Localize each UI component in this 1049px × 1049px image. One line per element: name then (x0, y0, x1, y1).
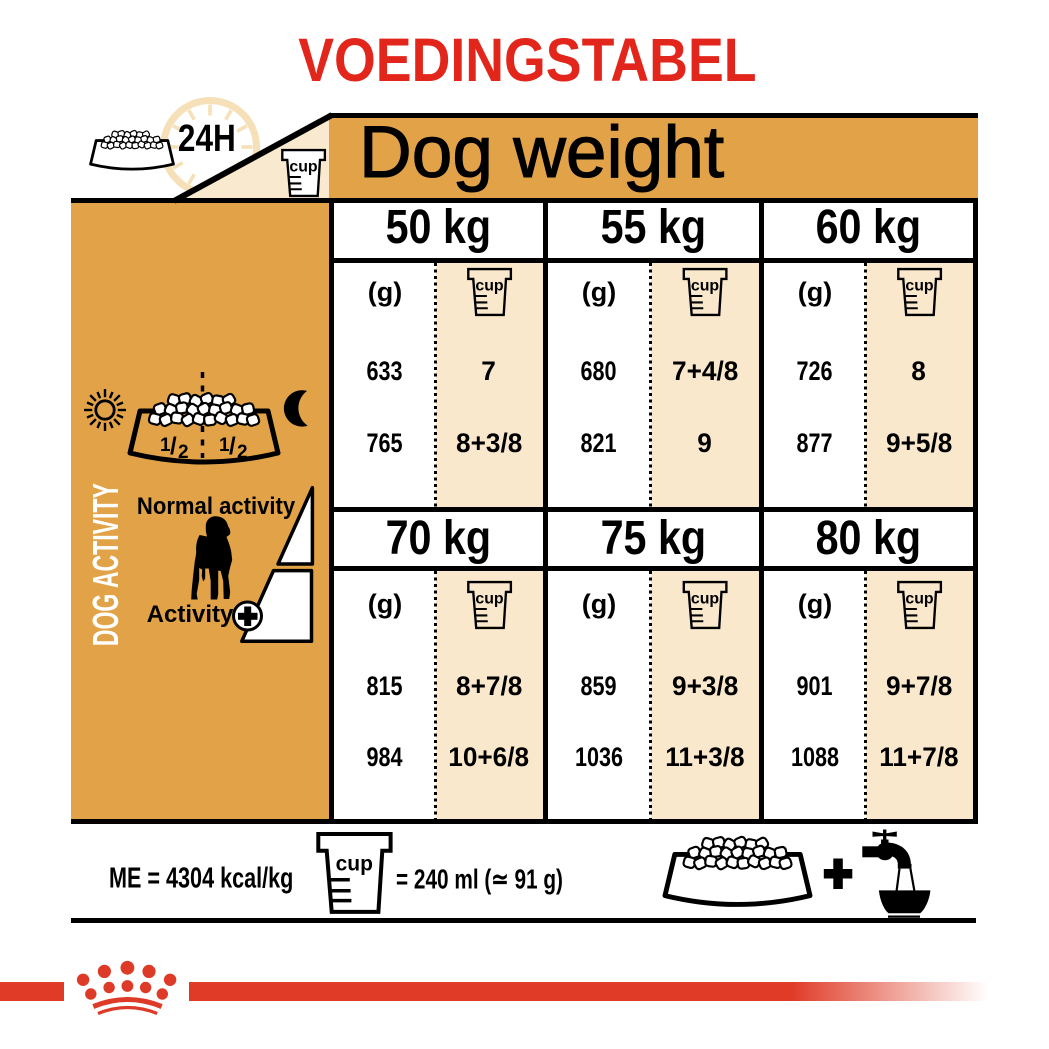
svg-text:cup: cup (475, 278, 504, 295)
svg-text:cup: cup (905, 591, 934, 608)
svg-text:cup: cup (905, 278, 934, 295)
svg-text:cup: cup (289, 159, 318, 176)
svg-text:cup: cup (691, 278, 720, 295)
svg-text:cup: cup (691, 591, 720, 608)
svg-text:cup: cup (475, 591, 504, 608)
